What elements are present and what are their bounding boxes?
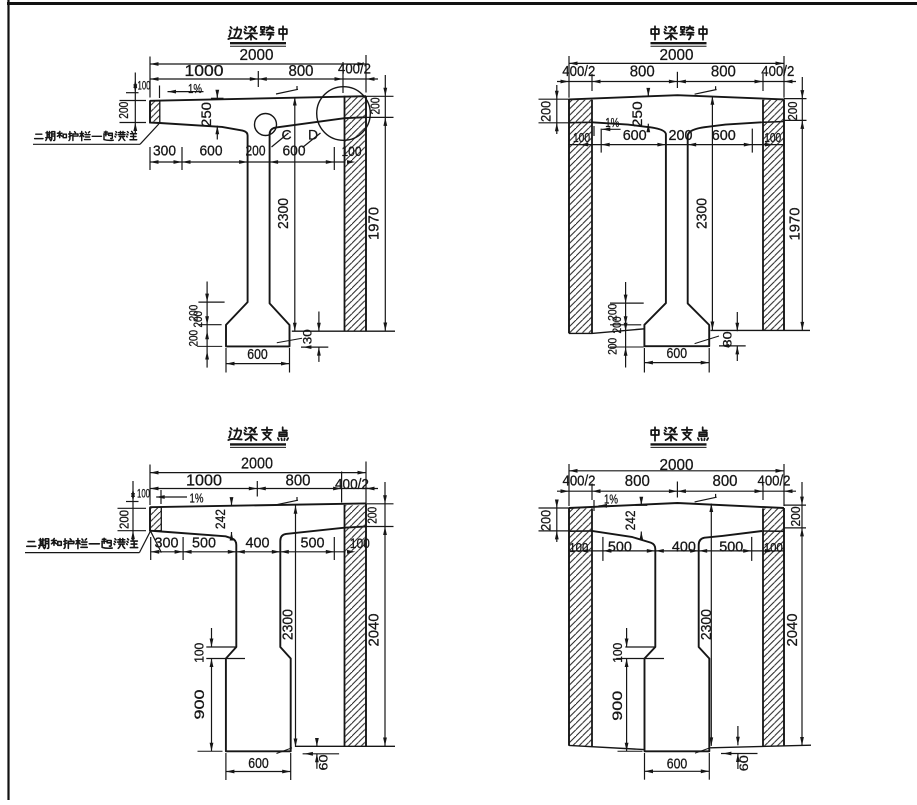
svg-text:1000: 1000 bbox=[185, 63, 224, 80]
svg-text:100: 100 bbox=[138, 79, 151, 93]
svg-text:242: 242 bbox=[212, 509, 228, 529]
svg-text:60: 60 bbox=[317, 754, 331, 770]
svg-text:200: 200 bbox=[193, 311, 205, 328]
svg-text:200: 200 bbox=[116, 102, 131, 119]
svg-text:400/2: 400/2 bbox=[761, 64, 794, 80]
svg-text:900: 900 bbox=[191, 689, 207, 719]
svg-text:2300: 2300 bbox=[694, 198, 710, 229]
svg-text:2040: 2040 bbox=[367, 614, 383, 647]
svg-text:600: 600 bbox=[623, 128, 647, 144]
svg-text:200: 200 bbox=[246, 144, 266, 160]
svg-text:200: 200 bbox=[365, 507, 380, 524]
svg-text:1%: 1% bbox=[188, 81, 202, 96]
svg-text:600: 600 bbox=[283, 144, 306, 160]
svg-text:1%: 1% bbox=[190, 491, 204, 506]
svg-text:1970: 1970 bbox=[367, 207, 383, 240]
svg-text:2000: 2000 bbox=[660, 47, 694, 64]
svg-text:100: 100 bbox=[342, 144, 362, 159]
svg-text:600: 600 bbox=[248, 756, 269, 772]
svg-text:242: 242 bbox=[622, 510, 638, 530]
svg-text:D: D bbox=[308, 127, 318, 143]
svg-text:600: 600 bbox=[247, 347, 268, 363]
svg-text:500: 500 bbox=[301, 536, 325, 552]
svg-text:600: 600 bbox=[200, 144, 223, 160]
svg-text:2000: 2000 bbox=[660, 457, 694, 474]
svg-text:100: 100 bbox=[764, 130, 781, 145]
svg-text:100: 100 bbox=[192, 643, 207, 663]
svg-text:200: 200 bbox=[608, 338, 620, 355]
svg-text:100: 100 bbox=[610, 643, 625, 663]
svg-text:400/2: 400/2 bbox=[563, 474, 596, 490]
svg-text:800: 800 bbox=[286, 473, 311, 490]
svg-text:200: 200 bbox=[612, 317, 624, 334]
svg-text:200: 200 bbox=[537, 101, 553, 122]
svg-text:200: 200 bbox=[189, 330, 201, 347]
svg-text:1000: 1000 bbox=[186, 473, 222, 490]
svg-text:30: 30 bbox=[720, 331, 734, 347]
svg-text:30: 30 bbox=[301, 329, 315, 344]
svg-text:900: 900 bbox=[609, 690, 625, 720]
svg-text:2300: 2300 bbox=[699, 609, 715, 640]
svg-text:800: 800 bbox=[711, 63, 736, 80]
svg-text:600: 600 bbox=[667, 346, 688, 362]
svg-text:400/2: 400/2 bbox=[562, 64, 595, 80]
svg-text:200: 200 bbox=[788, 507, 803, 527]
svg-text:300: 300 bbox=[155, 536, 179, 552]
svg-text:600: 600 bbox=[667, 757, 688, 773]
svg-text:250: 250 bbox=[629, 101, 645, 127]
svg-text:800: 800 bbox=[713, 473, 738, 490]
svg-text:200: 200 bbox=[368, 98, 383, 115]
svg-text:250: 250 bbox=[198, 102, 214, 127]
svg-text:100: 100 bbox=[573, 130, 590, 145]
svg-text:400/2: 400/2 bbox=[335, 477, 369, 493]
svg-text:600: 600 bbox=[712, 128, 736, 144]
svg-text:2000: 2000 bbox=[240, 47, 274, 64]
svg-text:1970: 1970 bbox=[787, 208, 803, 241]
svg-text:100: 100 bbox=[764, 540, 783, 555]
svg-text:100: 100 bbox=[137, 487, 150, 501]
svg-text:2300: 2300 bbox=[276, 198, 292, 229]
svg-text:500: 500 bbox=[192, 536, 216, 552]
svg-text:500: 500 bbox=[608, 539, 632, 555]
svg-text:2000: 2000 bbox=[241, 456, 273, 473]
svg-text:800: 800 bbox=[625, 473, 650, 490]
svg-text:100: 100 bbox=[569, 540, 588, 555]
svg-text:200: 200 bbox=[785, 102, 800, 121]
svg-text:800: 800 bbox=[630, 63, 655, 80]
svg-text:300: 300 bbox=[153, 144, 176, 160]
svg-text:200: 200 bbox=[538, 510, 554, 531]
svg-text:1%: 1% bbox=[605, 115, 619, 130]
svg-text:200: 200 bbox=[117, 510, 132, 529]
svg-text:2040: 2040 bbox=[785, 614, 801, 647]
svg-text:100: 100 bbox=[350, 536, 370, 551]
svg-text:200: 200 bbox=[669, 128, 693, 144]
svg-text:2300: 2300 bbox=[281, 609, 297, 640]
svg-text:500: 500 bbox=[719, 539, 743, 555]
svg-text:800: 800 bbox=[289, 63, 314, 80]
svg-text:60: 60 bbox=[737, 755, 751, 771]
svg-text:400: 400 bbox=[672, 539, 696, 555]
svg-text:400: 400 bbox=[246, 536, 270, 552]
